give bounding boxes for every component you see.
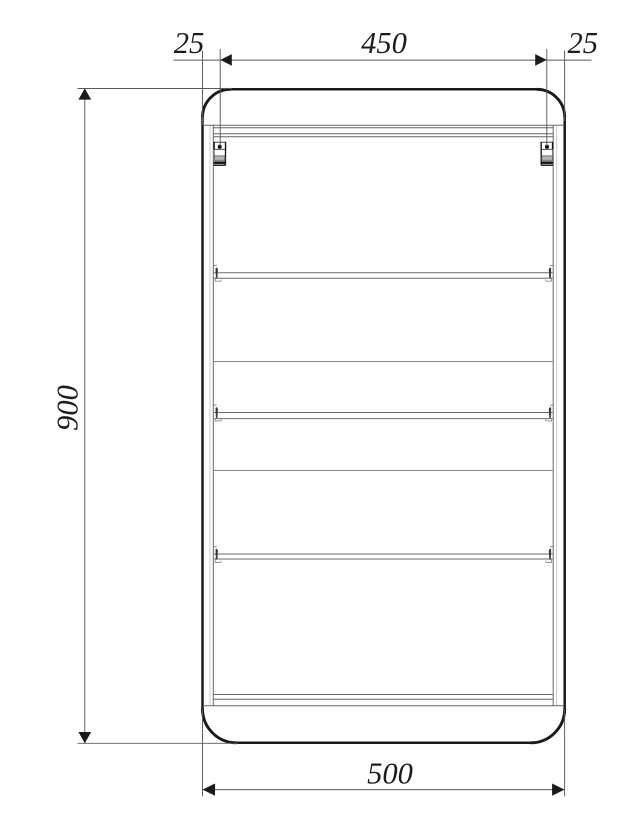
svg-text:25: 25 [174, 26, 205, 60]
svg-text:25: 25 [568, 26, 599, 60]
svg-text:900: 900 [50, 385, 84, 431]
svg-text:450: 450 [361, 26, 407, 60]
svg-text:500: 500 [367, 756, 413, 790]
